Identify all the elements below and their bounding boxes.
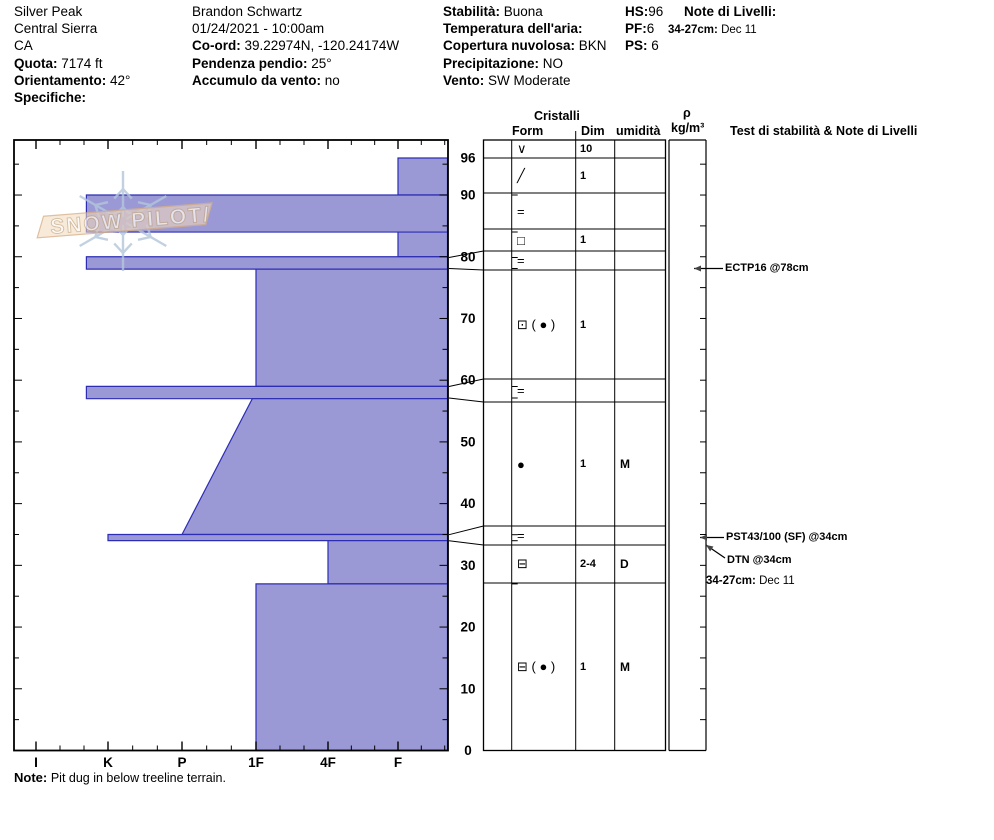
skycover-label: Copertura nuvolosa: (443, 38, 575, 53)
ps-value: 6 (651, 38, 659, 53)
observer-name: Brandon Schwartz (192, 4, 302, 19)
hardness-axis-label: K (103, 755, 113, 770)
windloading-value: no (325, 73, 340, 88)
ectp-test-label: ECTP16 @78cm (725, 262, 809, 274)
ectp-arrow-head (694, 266, 701, 272)
pf-value: 6 (647, 21, 655, 36)
footnote-text: Pit dug in below treeline terrain. (51, 771, 226, 785)
wetness-column-header: umidità (616, 124, 660, 138)
grain-form-symbol: = (517, 193, 573, 229)
grain-size-value: 10 (580, 140, 612, 158)
layer-note-range: 34-27cm: (668, 24, 718, 36)
site-name: Silver Peak (14, 4, 82, 19)
precip-line: Precipitazione: NO (443, 56, 563, 71)
specifics-line: Specifiche: (14, 90, 86, 105)
elevation-value: 7174 ft (61, 56, 102, 71)
hardness-axis-label: 4F (320, 755, 336, 770)
snow-layer-bar (86, 257, 447, 269)
fan-connector (449, 398, 484, 402)
crystals-group-header: Cristalli (534, 109, 580, 123)
coordinates-value: 39.22974N, -120.24174W (245, 38, 400, 53)
aspect-value: 42° (110, 73, 130, 88)
grain-form-symbol: = (517, 379, 573, 402)
layer-note-value: Dec 11 (721, 24, 757, 36)
depth-axis-label: 40 (460, 496, 475, 511)
hardness-axis-label: P (177, 755, 186, 770)
grain-form-symbol: ⊟ ( ● ) (517, 583, 573, 751)
tests-column-header: Test di stabilità & Note di Livelli (730, 124, 917, 138)
snow-layer-bar (256, 269, 448, 386)
precip-label: Precipitazione: (443, 56, 539, 71)
snow-layer-bar (182, 399, 448, 535)
grain-form-symbol: □ (517, 229, 573, 251)
hardness-axis-label: 1F (248, 755, 264, 770)
depth-axis-label: 96 (460, 151, 476, 166)
grain-form-symbol: ⊟ (517, 545, 573, 583)
form-column-header: Form (512, 124, 543, 138)
slope-angle-label: Pendenza pendio: (192, 56, 308, 71)
pst-test-label: PST43/100 (SF) @34cm (726, 531, 847, 543)
wetness-value: M (620, 583, 652, 751)
layer-date-value: Dec 11 (759, 575, 795, 587)
pf-line: PF:6 (625, 21, 654, 36)
stability-line: Stabilità: Buona (443, 4, 543, 19)
grain-size-value: 1 (580, 270, 612, 379)
dtn-arrow-head (706, 545, 713, 551)
grain-size-value: 1 (580, 158, 612, 193)
windloading-line: Accumulo da vento: no (192, 73, 340, 88)
layer-notes-header: Note di Livelli: (684, 4, 776, 19)
aspect-line: Orientamento: 42° (14, 73, 130, 88)
dim-column-header: Dim (581, 124, 605, 138)
hs-label: HS: (625, 4, 648, 19)
wind-line: Vento: SW Moderate (443, 73, 571, 88)
wetness-value: D (620, 545, 652, 583)
depth-axis-label: 70 (460, 311, 475, 326)
logo-text: SNOW PILOT/ (50, 203, 212, 239)
grain-form-symbol: ╱ (517, 158, 573, 193)
grain-size-value: 2-4 (580, 545, 612, 583)
snow-layer-bar (398, 232, 448, 257)
hs-value: 96 (648, 4, 663, 19)
ps-label: PS: (625, 38, 648, 53)
wind-value: SW Moderate (488, 73, 571, 88)
density-symbol-header: ρ (683, 106, 691, 120)
depth-axis-label: 50 (460, 434, 475, 449)
snowpilot-profile-page: SNOW PILOT/IKP1F4FF969080706050403020100… (0, 0, 994, 840)
elevation-line: Quota: 7174 ft (14, 56, 103, 71)
site-region: Central Sierra (14, 21, 97, 36)
airtemp-line: Temperatura dell'aria: (443, 21, 583, 36)
skycover-line: Copertura nuvolosa: BKN (443, 38, 607, 53)
grain-form-symbol: = (517, 251, 573, 270)
depth-axis-label: 10 (460, 681, 475, 696)
grain-size-value: 1 (580, 229, 612, 251)
wetness-value: M (620, 402, 652, 526)
layer-note-line: 34-27cm: Dec 11 (668, 24, 757, 36)
stability-label: Stabilità: (443, 4, 500, 19)
footnote: Note: Pit dug in below treeline terrain. (14, 770, 226, 785)
grain-form-symbol: ● (517, 402, 573, 526)
depth-axis-label: 60 (460, 373, 475, 388)
snowpilot-logo: SNOW PILOT/ (36, 171, 214, 271)
snow-layer-bar (398, 158, 448, 195)
grain-form-symbol: ⊡ ( ● ) (517, 270, 573, 379)
hardness-axis-label: I (34, 755, 38, 770)
density-unit-header: kg/m³ (671, 121, 704, 135)
pst-arrow-head (700, 535, 707, 541)
depth-axis-label: 90 (460, 188, 475, 203)
snow-layer-bar (256, 584, 448, 751)
dtn-test-label: DTN @34cm (727, 554, 792, 566)
grain-form-symbol: ∨ (517, 140, 573, 158)
stability-value: Buona (504, 4, 543, 19)
ps-line: PS: 6 (625, 38, 659, 53)
fan-connector (449, 269, 484, 271)
depth-axis-label: 20 (460, 620, 475, 635)
hardness-axis-label: F (394, 755, 402, 770)
slope-angle-value: 25° (311, 56, 331, 71)
elevation-label: Quota: (14, 56, 58, 71)
fan-connector (449, 541, 484, 545)
layer-date-note: 34-27cm: Dec 11 (706, 575, 795, 587)
hs-line: HS:96 (625, 4, 663, 19)
pit-datetime: 01/24/2021 - 10:00am (192, 21, 324, 36)
depth-axis-label: 0 (464, 743, 472, 758)
specifics-label: Specifiche: (14, 90, 86, 105)
site-state: CA (14, 38, 33, 53)
grain-form-symbol: = (517, 526, 573, 545)
coordinates-label: Co-ord: (192, 38, 241, 53)
windloading-label: Accumulo da vento: (192, 73, 321, 88)
pf-label: PF: (625, 21, 647, 36)
depth-axis-label: 30 (460, 558, 475, 573)
fan-connector (449, 526, 484, 535)
grain-size-value: 1 (580, 402, 612, 526)
grain-size-value: 1 (580, 583, 612, 751)
skycover-value: BKN (579, 38, 607, 53)
slope-angle-line: Pendenza pendio: 25° (192, 56, 332, 71)
layer-date-range: 34-27cm: (706, 575, 756, 587)
precip-value: NO (543, 56, 563, 71)
snow-layer-bar (108, 534, 448, 540)
snow-layer-bar (328, 541, 448, 584)
airtemp-label: Temperatura dell'aria: (443, 21, 583, 36)
depth-axis-label: 80 (460, 249, 475, 264)
footnote-label: Note: (14, 770, 47, 785)
coordinates-line: Co-ord: 39.22974N, -120.24174W (192, 38, 399, 53)
aspect-label: Orientamento: (14, 73, 106, 88)
wind-label: Vento: (443, 73, 484, 88)
snow-layer-bar (86, 386, 447, 398)
